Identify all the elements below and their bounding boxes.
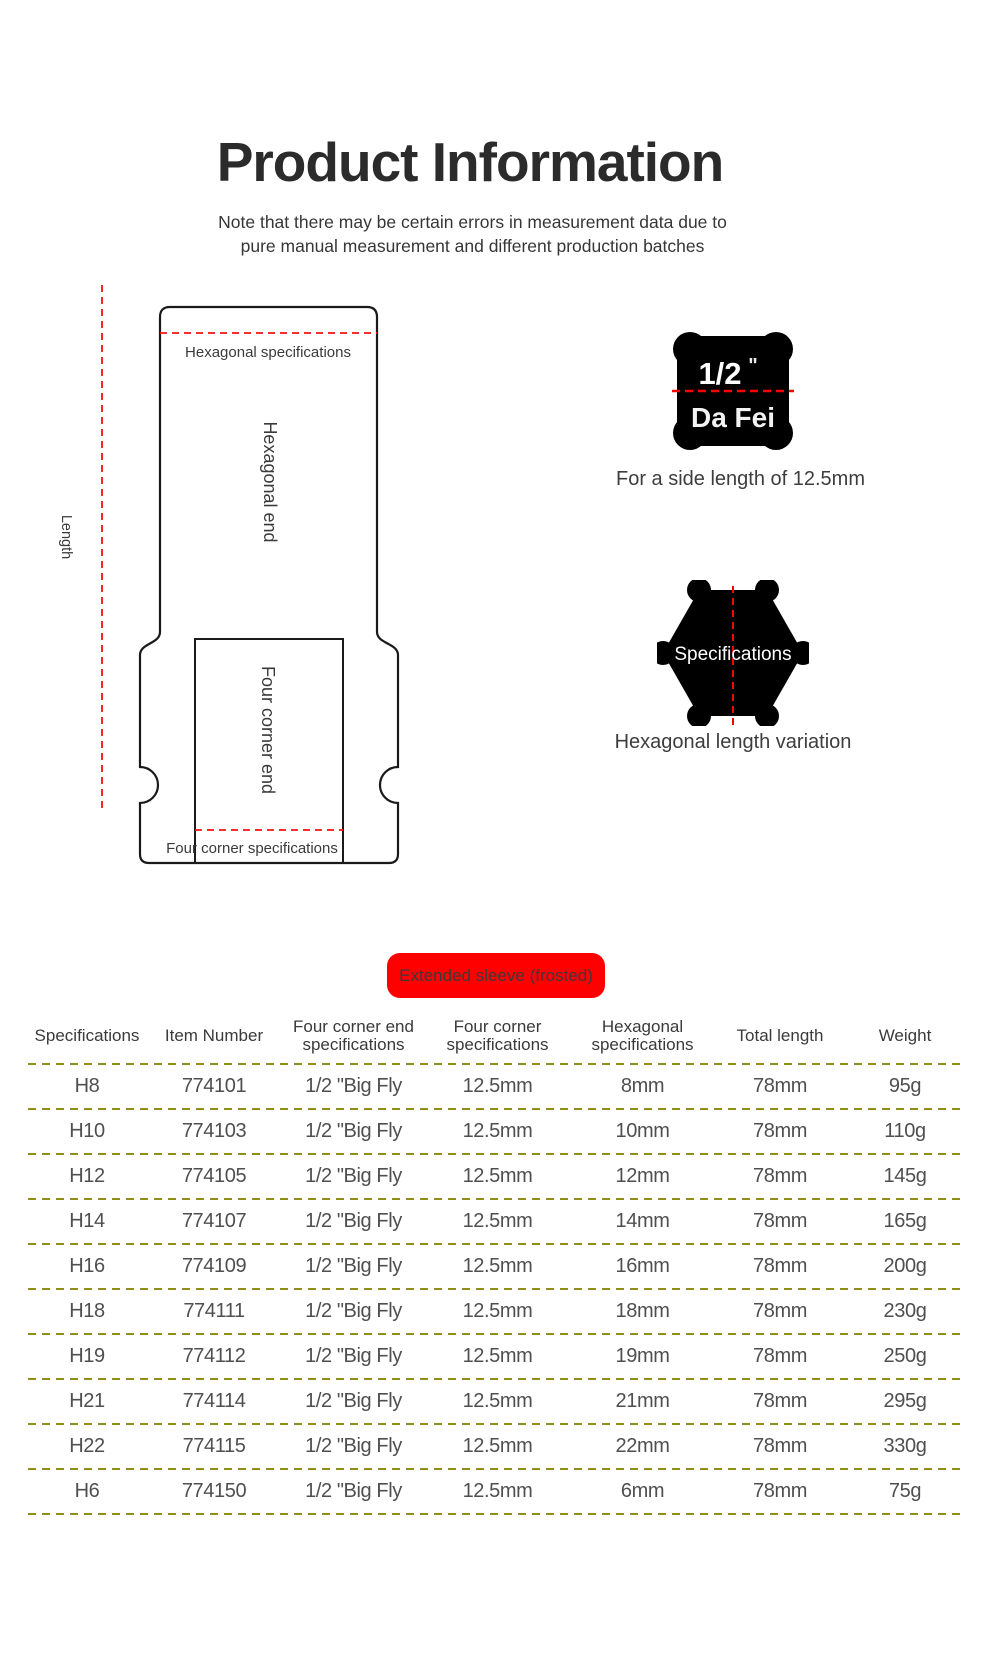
- table-row: H12 774105 1/2 "Big Fly 12.5mm 12mm 78mm…: [28, 1155, 965, 1198]
- table-cell: 78mm: [715, 1165, 845, 1188]
- table-cell: 18mm: [570, 1300, 715, 1323]
- table-row: H10 774103 1/2 "Big Fly 12.5mm 10mm 78mm…: [28, 1110, 965, 1153]
- table-cell: 1/2 "Big Fly: [282, 1480, 425, 1503]
- table-cell: 22mm: [570, 1435, 715, 1458]
- drive-inch-mark: ": [748, 355, 757, 377]
- table-cell: 75g: [845, 1480, 965, 1503]
- table-cell: 14mm: [570, 1210, 715, 1233]
- table-cell: 78mm: [715, 1120, 845, 1143]
- table-cell: 78mm: [715, 1300, 845, 1323]
- table-cell: H16: [28, 1255, 146, 1278]
- table-cell: 12.5mm: [425, 1120, 570, 1143]
- table-cell: H19: [28, 1345, 146, 1368]
- table-cell: H18: [28, 1300, 146, 1323]
- table-cell: 21mm: [570, 1390, 715, 1413]
- table-cell: H6: [28, 1480, 146, 1503]
- table-cell: 1/2 "Big Fly: [282, 1075, 425, 1098]
- table-cell: 1/2 "Big Fly: [282, 1390, 425, 1413]
- spec-table-header: Specifications Item Number Four corner e…: [28, 1008, 965, 1063]
- table-cell: 774103: [146, 1120, 282, 1143]
- table-cell: 19mm: [570, 1345, 715, 1368]
- column-header-total-length: Total length: [715, 1027, 845, 1045]
- table-cell: 165g: [845, 1210, 965, 1233]
- table-cell: 1/2 "Big Fly: [282, 1345, 425, 1368]
- table-cell: 110g: [845, 1120, 965, 1143]
- column-header-item-number: Item Number: [146, 1027, 282, 1045]
- table-cell: 330g: [845, 1435, 965, 1458]
- table-cell: 774150: [146, 1480, 282, 1503]
- table-cell: H22: [28, 1435, 146, 1458]
- column-header-four-corner-end-spec: Four corner end specifications: [282, 1018, 425, 1054]
- table-cell: 1/2 "Big Fly: [282, 1435, 425, 1458]
- table-cell: 78mm: [715, 1480, 845, 1503]
- table-cell: 1/2 "Big Fly: [282, 1300, 425, 1323]
- hexagon-badge-caption: Hexagonal length variation: [560, 731, 906, 754]
- table-cell: 12.5mm: [425, 1255, 570, 1278]
- table-cell: 78mm: [715, 1075, 845, 1098]
- table-row: H22 774115 1/2 "Big Fly 12.5mm 22mm 78mm…: [28, 1425, 965, 1468]
- table-cell: 774109: [146, 1255, 282, 1278]
- table-row: H18 774111 1/2 "Big Fly 12.5mm 18mm 78mm…: [28, 1290, 965, 1333]
- table-cell: 774107: [146, 1210, 282, 1233]
- table-cell: 250g: [845, 1345, 965, 1368]
- table-cell: 78mm: [715, 1345, 845, 1368]
- table-cell: 774111: [146, 1300, 282, 1323]
- table-cell: H8: [28, 1075, 146, 1098]
- table-cell: 12.5mm: [425, 1480, 570, 1503]
- table-cell: 12.5mm: [425, 1210, 570, 1233]
- sleeve-variant-badge: Extended sleeve (frosted): [387, 953, 605, 998]
- socket-diagram: Hexagonal specifications Hexagonal end F…: [30, 280, 500, 870]
- table-cell: 78mm: [715, 1390, 845, 1413]
- table-cell: 774105: [146, 1165, 282, 1188]
- four-corner-end-label: Four corner end: [258, 666, 278, 794]
- table-cell: 1/2 "Big Fly: [282, 1255, 425, 1278]
- table-cell: 12.5mm: [425, 1300, 570, 1323]
- table-row: H6 774150 1/2 "Big Fly 12.5mm 6mm 78mm 7…: [28, 1470, 965, 1513]
- table-cell: 78mm: [715, 1210, 845, 1233]
- table-cell: 12.5mm: [425, 1075, 570, 1098]
- table-row: H19 774112 1/2 "Big Fly 12.5mm 19mm 78mm…: [28, 1335, 965, 1378]
- table-cell: H14: [28, 1210, 146, 1233]
- table-cell: 1/2 "Big Fly: [282, 1210, 425, 1233]
- table-cell: 774115: [146, 1435, 282, 1458]
- four-corner-spec-label: Four corner specifications: [166, 840, 338, 857]
- table-row: H21 774114 1/2 "Big Fly 12.5mm 21mm 78mm…: [28, 1380, 965, 1423]
- page-subtitle: Note that there may be certain errors in…: [0, 210, 945, 258]
- length-label: Length: [58, 515, 74, 559]
- table-cell: 295g: [845, 1390, 965, 1413]
- hexagon-badge: Specifications: [657, 580, 809, 726]
- table-cell: H12: [28, 1165, 146, 1188]
- hexagonal-spec-label: Hexagonal specifications: [185, 344, 351, 361]
- hexagonal-end-label: Hexagonal end: [260, 421, 280, 542]
- row-separator: [28, 1513, 965, 1515]
- table-cell: 774114: [146, 1390, 282, 1413]
- drive-badge-caption: For a side length of 12.5mm: [563, 468, 918, 491]
- table-row: H8 774101 1/2 "Big Fly 12.5mm 8mm 78mm 9…: [28, 1065, 965, 1108]
- column-header-specifications: Specifications: [28, 1027, 146, 1045]
- table-cell: 1/2 "Big Fly: [282, 1120, 425, 1143]
- table-cell: 12mm: [570, 1165, 715, 1188]
- table-cell: 1/2 "Big Fly: [282, 1165, 425, 1188]
- hexagon-badge-label: Specifications: [674, 644, 791, 665]
- column-header-weight: Weight: [845, 1027, 965, 1045]
- table-cell: 230g: [845, 1300, 965, 1323]
- drive-size-label: 1/2: [698, 356, 741, 391]
- column-header-four-corner-spec: Four corner specifications: [425, 1018, 570, 1054]
- table-cell: 78mm: [715, 1255, 845, 1278]
- product-info-page: Product Information Note that there may …: [0, 0, 990, 1667]
- table-cell: 12.5mm: [425, 1165, 570, 1188]
- table-cell: 12.5mm: [425, 1390, 570, 1413]
- table-cell: 12.5mm: [425, 1435, 570, 1458]
- brand-label: Da Fei: [691, 402, 775, 433]
- table-cell: 200g: [845, 1255, 965, 1278]
- table-cell: 78mm: [715, 1435, 845, 1458]
- page-title: Product Information: [0, 130, 940, 194]
- table-cell: 774101: [146, 1075, 282, 1098]
- table-cell: 12.5mm: [425, 1345, 570, 1368]
- table-row: H16 774109 1/2 "Big Fly 12.5mm 16mm 78mm…: [28, 1245, 965, 1288]
- sleeve-variant-label: Extended sleeve (frosted): [399, 966, 593, 986]
- table-cell: 10mm: [570, 1120, 715, 1143]
- table-cell: H10: [28, 1120, 146, 1143]
- column-header-hexagonal-spec: Hexagonal specifications: [570, 1018, 715, 1054]
- spec-table-body: H8 774101 1/2 "Big Fly 12.5mm 8mm 78mm 9…: [28, 1065, 965, 1515]
- spec-table: Specifications Item Number Four corner e…: [28, 1008, 965, 1515]
- table-cell: 8mm: [570, 1075, 715, 1098]
- table-cell: 6mm: [570, 1480, 715, 1503]
- table-cell: 16mm: [570, 1255, 715, 1278]
- table-cell: 145g: [845, 1165, 965, 1188]
- table-cell: H21: [28, 1390, 146, 1413]
- square-drive-badge: 1/2 " Da Fei: [667, 324, 799, 458]
- table-row: H14 774107 1/2 "Big Fly 12.5mm 14mm 78mm…: [28, 1200, 965, 1243]
- table-cell: 95g: [845, 1075, 965, 1098]
- table-cell: 774112: [146, 1345, 282, 1368]
